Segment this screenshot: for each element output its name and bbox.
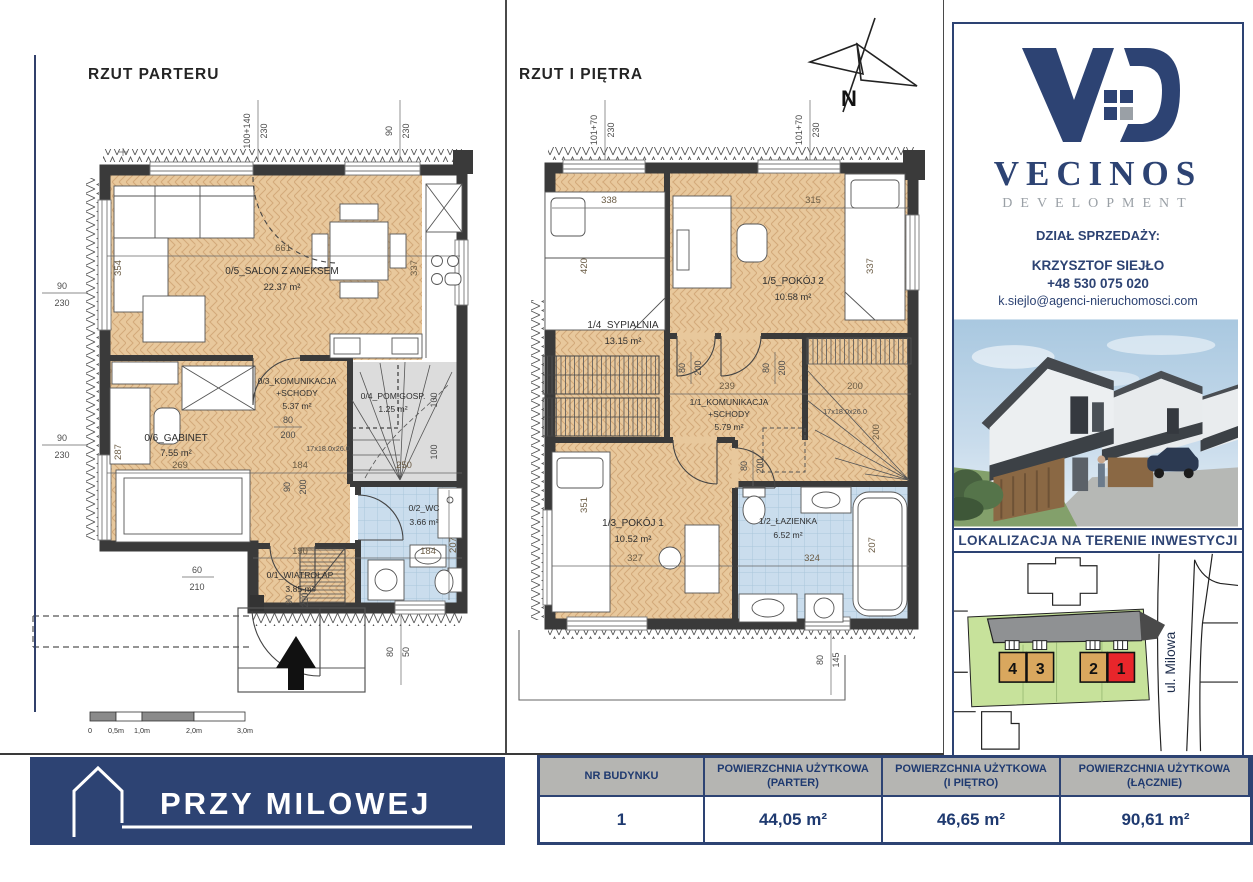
dim2-syp-h: 420 — [579, 258, 590, 274]
dim-win-a: 80 — [385, 647, 395, 657]
header-parter-line1: POWIERZCHNIA UŻYTKOWA — [717, 763, 869, 777]
dim-door3a: 90 — [284, 595, 294, 605]
dim-left1b: 230 — [54, 298, 69, 308]
dim-left1a: 90 — [57, 281, 67, 291]
dim-win-b: 50 — [401, 647, 411, 657]
table-header-pietro: POWIERZCHNIA UŻYTKOWA (I PIĘTRO) — [883, 758, 1061, 797]
cell-area-pietro: 46,65 m² — [883, 797, 1061, 842]
contact-phone[interactable]: +48 530 075 020 — [954, 276, 1242, 291]
dim2-door1b: 200 — [693, 360, 703, 375]
room-wc-area: 3.66 m² — [409, 517, 438, 527]
dim-kom-w: 184 — [292, 460, 308, 471]
dim-top2b: 230 — [401, 123, 411, 138]
dim2-top2a: 101+70 — [794, 115, 804, 145]
north-arrow-icon — [810, 18, 917, 112]
area-table: NR BUDYNKU POWIERZCHNIA UŻYTKOWA (PARTER… — [537, 755, 1253, 845]
first-plan-title: RZUT I PIĘTRA — [519, 66, 643, 83]
room-pokoj1-name: 1/3_POKÓJ 1 — [602, 516, 664, 529]
cell-building-no: 1 — [540, 797, 705, 842]
project-banner: PRZY MILOWEJ — [30, 757, 505, 845]
room-pokoj2-name: 1/5_POKÓJ 2 — [762, 274, 824, 287]
dim2-pokoj2-h: 337 — [865, 258, 876, 274]
dim-top2a: 90 — [384, 126, 394, 136]
stairs-flight-2 — [807, 338, 911, 364]
dim-left2a: 90 — [57, 433, 67, 443]
entrance-arrow-icon — [276, 636, 316, 690]
scale-30: 3,0m — [237, 726, 253, 735]
header-pietro-line2: (I PIĘTRO) — [944, 777, 998, 791]
dim2-pokoj1-w: 327 — [627, 553, 643, 564]
dim-stairs-steps: 17x18.0x26.0 — [306, 444, 350, 453]
room-sypialnia-name: 1/4_SYPIALNIA — [587, 320, 658, 331]
dim2-top2b: 230 — [811, 122, 821, 137]
dim-salon-h: 354 — [113, 260, 124, 276]
insulation-hatch-top — [103, 149, 462, 162]
room-gabinet-area: 7.55 m² — [160, 448, 192, 458]
sheet-frame-left — [34, 55, 36, 712]
site-map: 4 3 2 1 ul. Milowa — [954, 553, 1242, 757]
room-komunikacja2-area: 5.79 m² — [714, 422, 743, 432]
ground-floor-plan: RZUT PARTERU — [0, 0, 505, 755]
houses-photo — [954, 318, 1242, 528]
brand-block: VECINOS DEVELOPMENT — [954, 24, 1242, 212]
dim-salon-w: 661 — [275, 243, 291, 254]
brand-name: VECINOS — [994, 156, 1202, 191]
map-unit-4-label: 4 — [1008, 661, 1017, 678]
room-komunikacja-name2: +SCHODY — [276, 388, 318, 398]
dim-wc-h: 207 — [448, 537, 459, 553]
room-wiatrolap-area: 3.85 m² — [285, 584, 314, 594]
map-unit-2-label: 2 — [1089, 661, 1098, 678]
table-header-parter: POWIERZCHNIA UŻYTKOWA (PARTER) — [705, 758, 883, 797]
scale-bar: 0 0,5m 1,0m 2,0m 3,0m — [88, 712, 253, 735]
header-total-line1: POWIERZCHNIA UŻYTKOWA — [1079, 763, 1231, 777]
dim2-stairs-w: 200 — [847, 381, 863, 392]
dim-door2a: 90 — [282, 482, 292, 492]
dim-stairs-w: 250 — [396, 460, 412, 471]
table-header-total: POWIERZCHNIA UŻYTKOWA (ŁĄCZNIE) — [1061, 758, 1250, 797]
room-komunikacja2-name2: +SCHODY — [708, 409, 750, 419]
dim-gabinet-w: 269 — [172, 460, 188, 471]
room-sypialnia-area: 13.15 m² — [605, 336, 642, 346]
first-floor-plan: RZUT I PIĘTRA N — [505, 0, 940, 755]
header-pietro-line1: POWIERZCHNIA UŻYTKOWA — [895, 763, 1047, 777]
dim2-door2b: 200 — [777, 360, 787, 375]
brand-subtitle: DEVELOPMENT — [1002, 196, 1193, 212]
street-label: ul. Milowa — [1163, 631, 1178, 693]
contact-block: DZIAŁ SPRZEDAŻY: KRZYSZTOF SIEJŁO +48 53… — [954, 212, 1242, 308]
vd-logo-icon — [1014, 38, 1182, 150]
dim-entry-b: 210 — [189, 582, 204, 592]
room-komunikacja-name: 0/3_KOMUNIKACJA — [258, 376, 337, 386]
room-salon-area: 22.37 m² — [264, 282, 301, 292]
location-label: LOKALIZACJA NA TERENIE INWESTYCJI — [954, 528, 1242, 553]
room-pomgosp-name: 0/4_POM.GOSP. — [361, 391, 426, 401]
header-parter-line2: (PARTER) — [767, 777, 819, 791]
sidebar-box: VECINOS DEVELOPMENT DZIAŁ SPRZEDAŻY: KRZ… — [952, 22, 1244, 759]
contact-email[interactable]: k.siejlo@agenci-nieruchomosci.com — [954, 294, 1242, 308]
dim2-top1b: 230 — [606, 122, 616, 137]
dim-door1a: 80 — [283, 415, 293, 425]
project-name: PRZY MILOWEJ — [160, 786, 431, 821]
room-lazienka-name: 1/2_ŁAZIENKA — [759, 516, 818, 526]
dim-flight1: 100 — [429, 392, 439, 407]
dim2-door1a: 80 — [677, 363, 687, 373]
dim2-pokoj1-h: 351 — [579, 497, 590, 513]
contact-name: KRZYSZTOF SIEJŁO — [954, 258, 1242, 273]
header-total-line2: (ŁĄCZNIE) — [1127, 777, 1182, 791]
dim2-flight: 200 — [871, 424, 882, 440]
dim2-syp-w: 338 — [601, 195, 617, 206]
room-pokoj1-area: 10.52 m² — [615, 534, 652, 544]
room-komunikacja-area: 5.37 m² — [282, 401, 311, 411]
map-unit-1-label: 1 — [1117, 661, 1126, 678]
room-lazienka-area: 6.52 m² — [773, 530, 802, 540]
dim-door2b: 200 — [298, 479, 308, 494]
room-wiatrolap-name: 0/1_WIATROŁAP — [267, 570, 334, 580]
dim2-win-a: 80 — [815, 655, 825, 665]
dim-flight2: 100 — [429, 444, 439, 459]
dim-door3b: 210 — [300, 592, 310, 607]
scale-0: 0 — [88, 726, 92, 735]
cell-area-parter: 44,05 m² — [705, 797, 883, 842]
sheet-divider-1 — [505, 0, 507, 753]
terrace-outline — [33, 616, 250, 647]
corner-pier-2 — [903, 150, 925, 180]
room-komunikacja2-name: 1/1_KOMUNIKACJA — [690, 397, 769, 407]
insulation-top-2 — [548, 147, 915, 160]
insulation-hatch-bottom — [253, 613, 462, 626]
north-label: N — [841, 86, 857, 111]
dim2-stairs-steps: 17x18.0x26.0 — [823, 407, 867, 416]
table-header-building: NR BUDYNKU — [540, 758, 705, 797]
dim2-door2a: 80 — [761, 363, 771, 373]
map-unit-3-label: 3 — [1036, 661, 1045, 678]
dim2-kom-w: 239 — [719, 381, 735, 392]
dim-entry-a: 60 — [192, 565, 202, 575]
dim2-laz-h: 207 — [867, 537, 878, 553]
ground-plan-title: RZUT PARTERU — [88, 66, 219, 83]
header-building-label: NR BUDYNKU — [585, 770, 659, 784]
room-wc-name: 0/2_WC — [408, 503, 439, 513]
dim2-pokoj2-w: 315 — [805, 195, 821, 206]
room-pokoj2-area: 10.58 m² — [775, 292, 812, 302]
dim-top1b: 230 — [259, 123, 269, 138]
corner-pier — [453, 150, 473, 174]
dim2-door3a: 80 — [739, 461, 749, 471]
dim-left2b: 230 — [54, 450, 69, 460]
roof-outline — [519, 630, 845, 700]
dim2-top1a: 101+70 — [589, 115, 599, 145]
scale-05: 0,5m — [108, 726, 124, 735]
room-salon-name: 0/5_SALON Z ANEKSEM — [225, 266, 338, 277]
scale-20: 2,0m — [186, 726, 202, 735]
brochure-page: RZUT PARTERU — [0, 0, 1253, 882]
dim-wc-w: 184 — [420, 546, 436, 557]
insulation-left-2 — [531, 300, 544, 620]
dim-kitchen-h: 337 — [409, 260, 420, 276]
dim-gabinet-h: 287 — [113, 444, 124, 460]
dim2-win-b: 145 — [831, 652, 841, 667]
dim2-door3b: 200 — [755, 458, 765, 473]
scale-10: 1,0m — [134, 726, 150, 735]
room-gabinet-name: 0/6_GABINET — [144, 433, 207, 444]
sales-label: DZIAŁ SPRZEDAŻY: — [954, 228, 1242, 243]
dim-wiatrolap-w: 190 — [292, 546, 308, 557]
sidebar: VECINOS DEVELOPMENT DZIAŁ SPRZEDAŻY: KRZ… — [944, 0, 1253, 757]
insulation-hatch-left — [86, 178, 99, 540]
dim-top1a: 100+140 — [242, 113, 252, 148]
cell-area-total: 90,61 m² — [1061, 797, 1250, 842]
dim-door1b: 200 — [280, 430, 295, 440]
dim2-laz-w: 324 — [804, 553, 820, 564]
room-pomgosp-area: 1.25 m² — [378, 404, 407, 414]
